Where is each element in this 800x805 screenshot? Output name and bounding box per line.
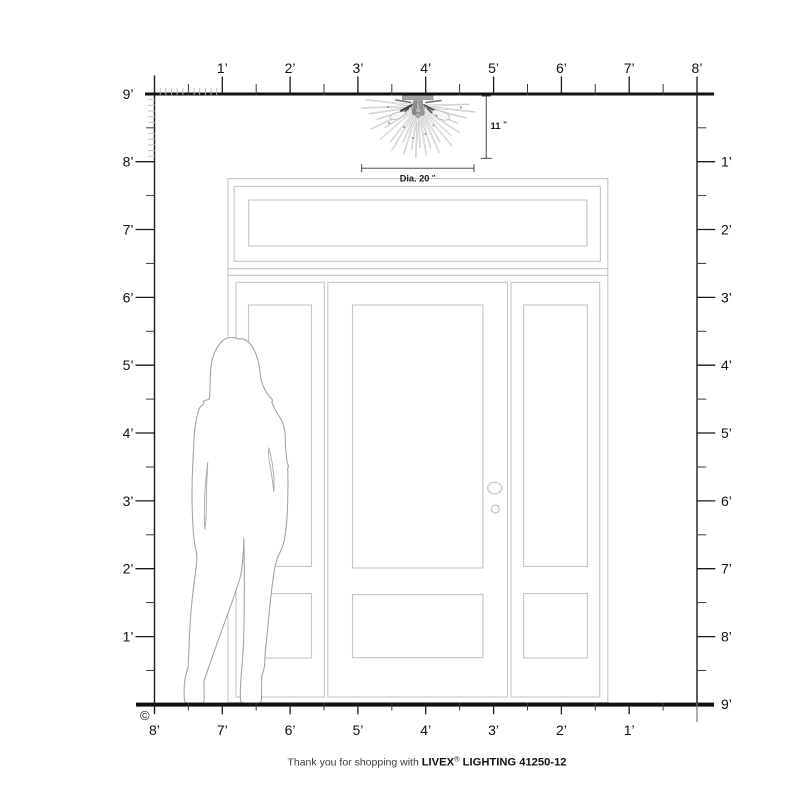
svg-text:Dia. 20 ″: Dia. 20 ″ xyxy=(400,174,436,184)
svg-text:1’: 1’ xyxy=(721,154,732,170)
svg-text:9’: 9’ xyxy=(123,86,134,102)
svg-text:©: © xyxy=(140,708,150,723)
svg-text:7’: 7’ xyxy=(217,722,228,738)
svg-text:9’: 9’ xyxy=(721,696,732,712)
svg-text:2’: 2’ xyxy=(721,222,732,238)
svg-text:4’: 4’ xyxy=(420,60,431,76)
svg-text:4’: 4’ xyxy=(721,357,732,373)
svg-text:5’: 5’ xyxy=(721,425,732,441)
svg-text:4’: 4’ xyxy=(420,722,431,738)
svg-text:7’: 7’ xyxy=(721,561,732,577)
svg-text:8’: 8’ xyxy=(149,722,160,738)
svg-text:8’: 8’ xyxy=(692,60,703,76)
svg-text:8’: 8’ xyxy=(721,629,732,645)
svg-text:6’: 6’ xyxy=(721,493,732,509)
svg-text:7’: 7’ xyxy=(123,222,134,238)
svg-text:1’: 1’ xyxy=(217,60,228,76)
svg-text:4’: 4’ xyxy=(123,425,134,441)
svg-text:8’: 8’ xyxy=(123,154,134,170)
svg-text:1’: 1’ xyxy=(624,722,635,738)
svg-text:6’: 6’ xyxy=(123,289,134,305)
svg-text:7’: 7’ xyxy=(624,60,635,76)
svg-text:2’: 2’ xyxy=(123,561,134,577)
svg-text:3’: 3’ xyxy=(352,60,363,76)
svg-text:5’: 5’ xyxy=(488,60,499,76)
svg-text:3’: 3’ xyxy=(123,493,134,509)
svg-text:6’: 6’ xyxy=(556,60,567,76)
svg-text:2’: 2’ xyxy=(285,60,296,76)
svg-text:2’: 2’ xyxy=(556,722,567,738)
svg-text:5’: 5’ xyxy=(352,722,363,738)
svg-text:3’: 3’ xyxy=(721,289,732,305)
svg-text:3’: 3’ xyxy=(488,722,499,738)
svg-text:6’: 6’ xyxy=(285,722,296,738)
svg-text:1’: 1’ xyxy=(123,629,134,645)
svg-text:5’: 5’ xyxy=(123,357,134,373)
svg-text:Thank you for shopping with LI: Thank you for shopping with LIVEX® LIGHT… xyxy=(287,755,566,769)
